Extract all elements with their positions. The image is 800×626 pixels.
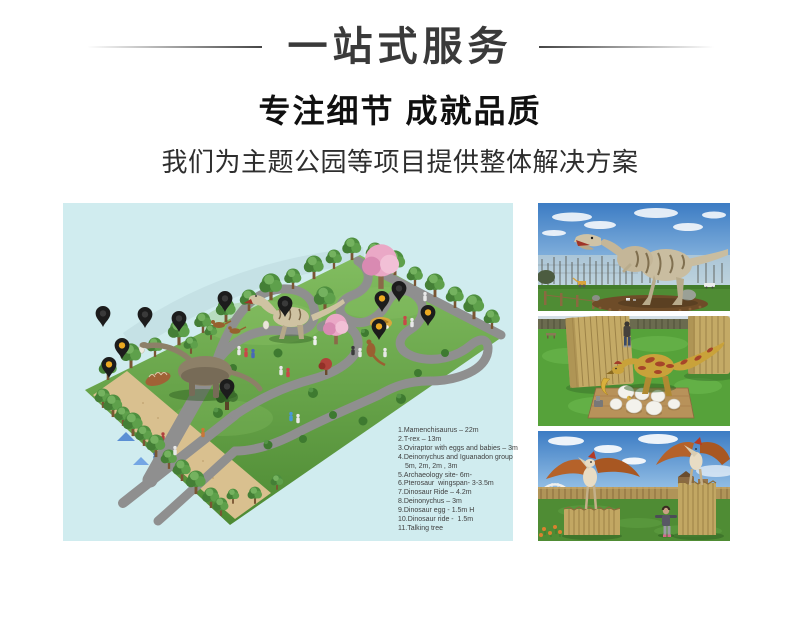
grass-edge [538,285,730,289]
hatchling-figure [627,396,631,400]
section-title-row: 一站式服务 [0,20,800,74]
photo-oviraptor-nest [538,316,730,426]
legend-line: 4.Deinonychus and Iguanadon group [398,454,513,463]
header: 一站式服务 专注细节 成就品质 我们为主题公园等项目提供整体解决方案 [0,0,800,179]
legend-line: 7.Dinosaur Ride – 4.2m [398,489,513,498]
legend-line: 2.T-rex – 13m [398,436,513,445]
legend-line: 5m, 2m, 2m , 3m [398,463,513,472]
rock-small [592,295,600,301]
photo-column [538,203,730,541]
title-rule-right [539,46,714,48]
wooden-post-column-left [565,316,634,388]
legend-line: 3.Oviraptor with eggs and babies – 3m [398,445,513,454]
legend-line: 11.Talking tree [398,525,513,534]
park-plan-image: 1.Mamenchisaurus – 22m 2.T-rex – 13m 3.O… [63,203,513,541]
section-subtitle: 专注细节 成就品质 [0,86,800,132]
legend-line: 1.Mamenchisaurus – 22m [398,427,513,436]
legend-line: 10.Dinosaur ride - 1.5m [398,516,513,525]
main-content: 1.Mamenchisaurus – 22m 2.T-rex – 13m 3.O… [63,203,730,541]
legend-line: 8.Deinonychus – 3m [398,498,513,507]
plinth-left [564,507,620,535]
title-rule-left [87,46,262,48]
photo-pterosaurs [538,431,730,541]
section-title: 一站式服务 [288,23,513,71]
legend-line: 9.Dinosaur egg - 1.5m H [398,507,513,516]
plinth-right [678,481,716,535]
legend-line: 5.Archaeology site- 6m- [398,472,513,481]
photo-animatronic-trex [538,203,730,311]
page: 一站式服务 专注细节 成就品质 我们为主题公园等项目提供整体解决方案 [0,0,800,626]
section-description: 我们为主题公园等项目提供整体解决方案 [0,142,800,179]
oviraptor-photo-illustration [538,316,730,426]
legend-line: 6.Pterosaur wingspan- 3-3.5m [398,480,513,489]
trex-photo-illustration [538,203,730,311]
egg-sculpture [263,321,269,329]
plan-legend: 1.Mamenchisaurus – 22m 2.T-rex – 13m 3.O… [398,427,513,534]
pterosaur-photo-illustration [538,431,730,541]
